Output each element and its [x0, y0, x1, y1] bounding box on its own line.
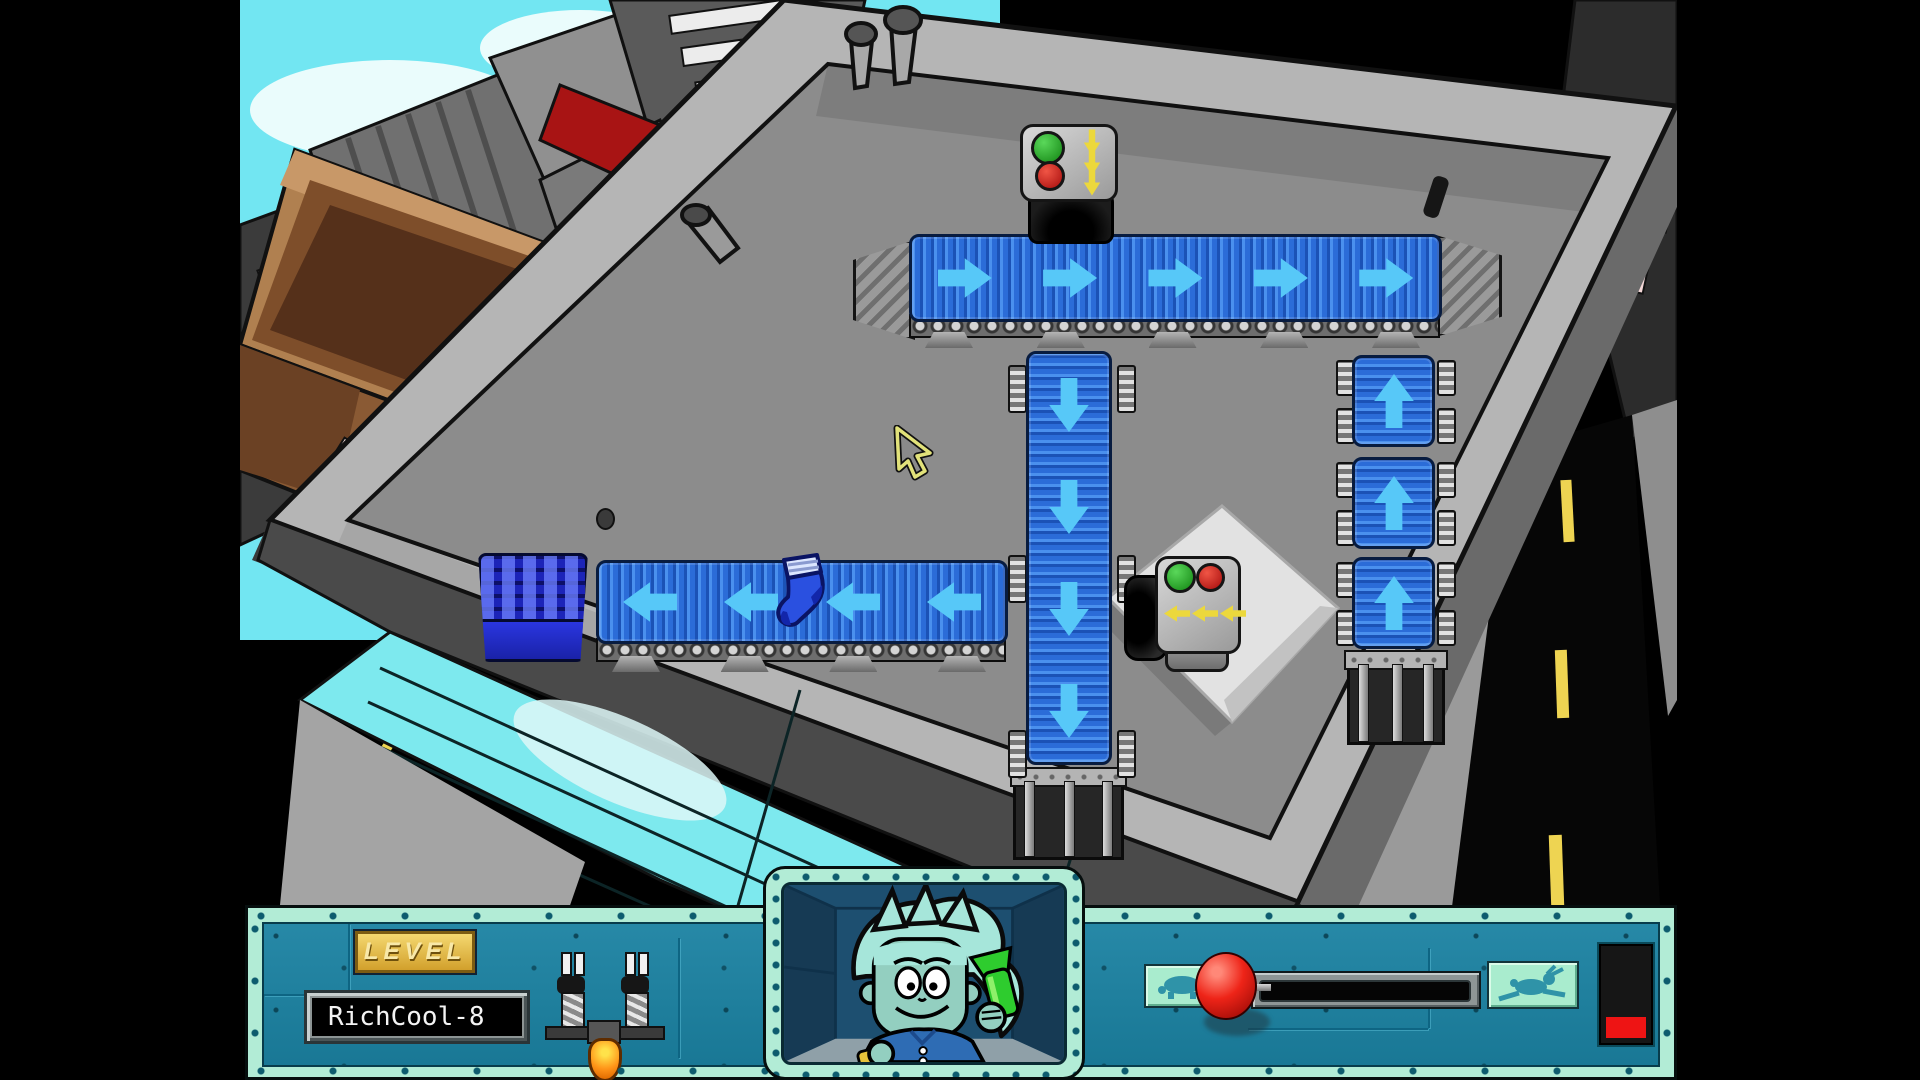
roof-bolt — [596, 508, 615, 530]
redirector-arrows — [1164, 605, 1246, 622]
portrait-scene — [781, 882, 1067, 1065]
right-column-middle[interactable] — [1352, 457, 1435, 549]
level-name-text: RichCool-8 — [312, 998, 522, 1036]
sock-dispenser[interactable] — [1020, 124, 1118, 202]
right-column-top[interactable] — [1352, 355, 1435, 447]
arrow-down-icon — [1047, 480, 1091, 534]
arrow-right-icon — [938, 256, 992, 300]
conveyor-stand — [1013, 768, 1124, 860]
arrow-right-icon — [1043, 256, 1097, 300]
arrow-left-icon — [1192, 605, 1218, 622]
cursor-arrow — [891, 425, 943, 485]
game-screen: { "hud": { "level_plaque": "LEVEL", "lev… — [0, 0, 1920, 1080]
dispenser-arrows — [1079, 134, 1105, 191]
pajama-sam-portrait[interactable] — [763, 866, 1085, 1080]
arrow-up-icon — [1372, 374, 1416, 428]
center-vertical-conveyor[interactable] — [1026, 351, 1112, 765]
arrow-left-icon — [1220, 605, 1246, 622]
level-plaque-label: LEVEL — [364, 938, 466, 966]
progress-meter-fill — [1606, 1017, 1646, 1038]
right-column-bottom[interactable] — [1352, 557, 1435, 649]
top-conveyor[interactable] — [909, 234, 1442, 322]
green-light-icon — [1164, 561, 1196, 593]
arrow-up-icon — [1372, 576, 1416, 630]
red-light-icon — [1035, 161, 1065, 191]
sock[interactable] — [770, 552, 834, 640]
pajama-sam-character — [784, 885, 1064, 1062]
arrow-right-icon — [1148, 256, 1202, 300]
roof-vent-pipes — [833, 2, 933, 97]
speed-slider-track[interactable] — [1251, 971, 1481, 1009]
arrow-down-icon — [1047, 684, 1091, 738]
arrow-left-icon — [623, 580, 677, 624]
speed-slider-knob[interactable] — [1195, 952, 1257, 1020]
arrow-left-icon — [927, 580, 981, 624]
arrow-down-icon — [1047, 378, 1091, 432]
arrow-left-icon — [1164, 605, 1190, 622]
conveyor-stand — [1347, 651, 1445, 745]
level-plaque: LEVEL — [355, 931, 475, 973]
level-name-display: RichCool-8 — [304, 990, 530, 1044]
arrow-down-icon — [1084, 170, 1101, 196]
arrow-right-icon — [1254, 256, 1308, 300]
slider-rabbit-plate — [1487, 961, 1579, 1009]
arrow-up-icon — [1372, 476, 1416, 530]
arrow-right-icon — [1359, 256, 1413, 300]
rabbit-icon — [1489, 963, 1577, 1007]
green-light-icon — [1031, 131, 1065, 165]
sock-redirector[interactable] — [1155, 556, 1241, 654]
sock-basket[interactable] — [478, 553, 588, 662]
arrow-down-icon — [1047, 582, 1091, 636]
progress-meter — [1599, 944, 1653, 1045]
roof-vent-small — [672, 200, 752, 270]
red-light-icon — [1196, 563, 1225, 592]
